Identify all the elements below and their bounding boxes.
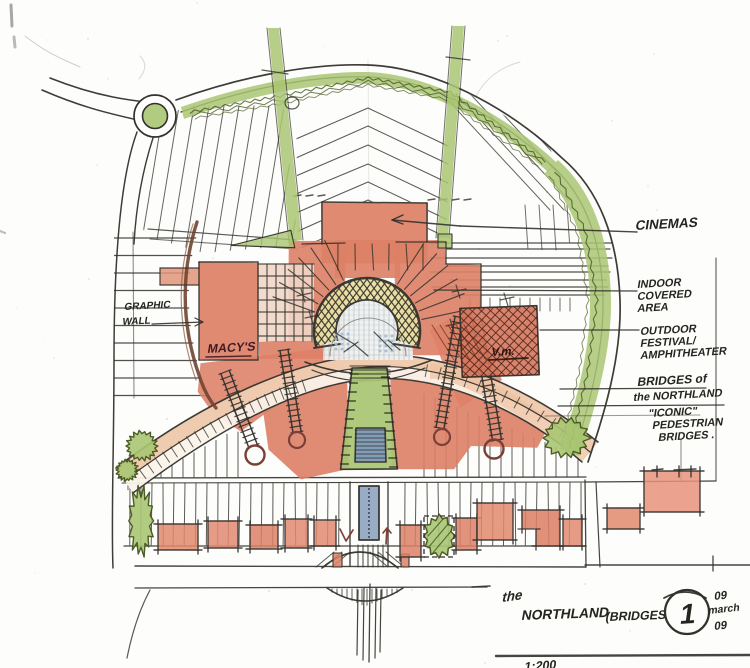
svg-text:V.m.: V.m. [491, 345, 516, 359]
svg-text:MACY'S: MACY'S [207, 340, 257, 356]
svg-text:09: 09 [714, 619, 729, 633]
svg-text:1:200: 1:200 [524, 658, 558, 668]
svg-text:(BRIDGES: (BRIDGES [604, 608, 667, 624]
svg-text:NORTHLAND: NORTHLAND [520, 604, 610, 623]
svg-text:WALL: WALL [122, 316, 152, 328]
svg-text:AREA: AREA [637, 301, 670, 315]
svg-text:09: 09 [714, 589, 729, 603]
svg-text:the: the [502, 587, 523, 605]
